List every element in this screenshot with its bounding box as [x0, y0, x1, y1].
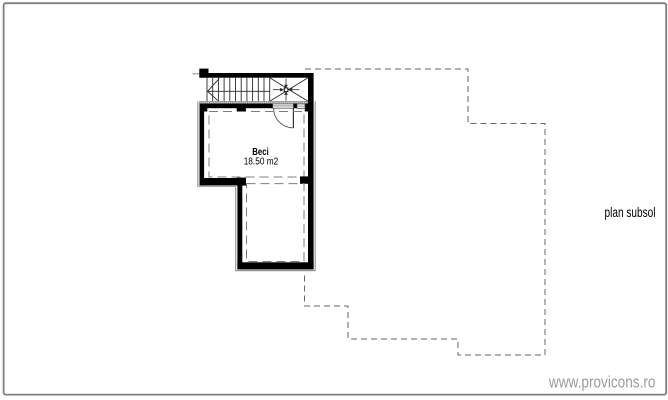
svg-text:18.50 m2: 18.50 m2	[244, 157, 279, 168]
svg-text:plan subsol: plan subsol	[605, 205, 656, 220]
svg-text:www.provicons.ro: www.provicons.ro	[548, 373, 655, 392]
